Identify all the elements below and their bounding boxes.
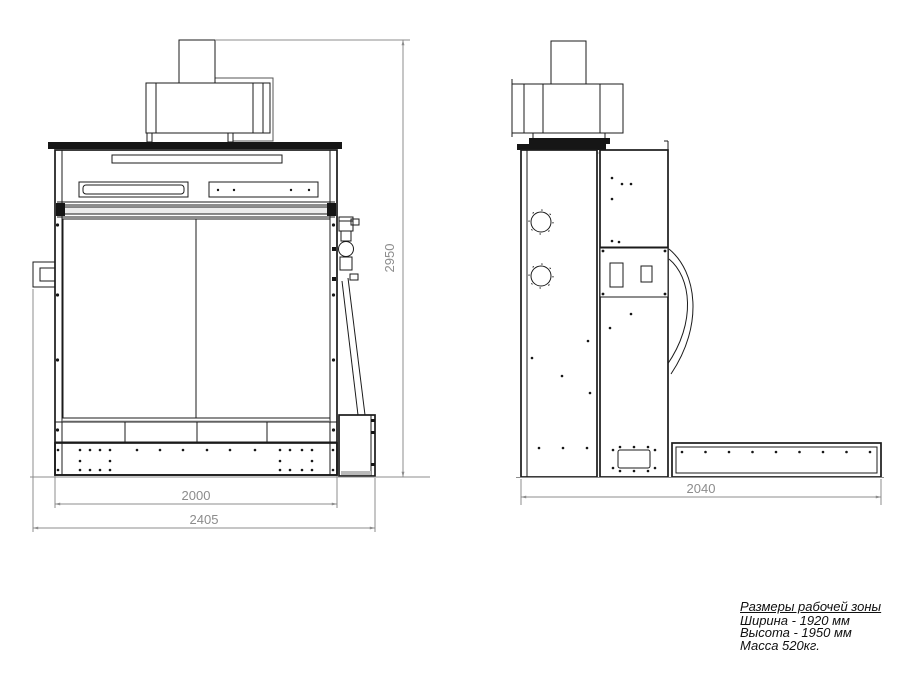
drawing-canvas: 2950 2000 2405 2040 Размеры рабочей зоны… <box>0 0 906 677</box>
front-air-hose <box>342 278 365 415</box>
front-fan-housing <box>146 83 270 142</box>
notes-title: Размеры рабочей зоны <box>740 601 881 614</box>
front-cabinet-cap <box>48 142 342 149</box>
front-view <box>33 40 375 476</box>
side-rear-column <box>600 141 668 477</box>
side-cable-arc <box>667 249 693 374</box>
side-view <box>512 41 881 477</box>
dim-front-inner-width: 2000 <box>55 476 337 508</box>
side-control-box <box>600 248 668 297</box>
dim-front-total-width-label: 2405 <box>190 512 219 527</box>
dim-side-depth-label: 2040 <box>687 481 716 496</box>
front-side-extension-box <box>339 415 375 476</box>
side-base-extension <box>672 443 881 477</box>
technical-drawing-svg: 2950 2000 2405 2040 <box>0 0 906 677</box>
side-fan-housing <box>512 79 623 144</box>
side-cabinet-cap <box>517 144 606 150</box>
dim-front-inner-width-label: 2000 <box>182 488 211 503</box>
front-exhaust-duct <box>179 40 215 84</box>
dim-side-depth: 2040 <box>521 479 881 505</box>
side-exhaust-duct <box>551 41 586 84</box>
work-area-notes: Размеры рабочей зоны Ширина - 1920 мм Вы… <box>740 601 881 652</box>
side-front-column <box>521 150 597 477</box>
front-wall-bracket <box>33 262 55 287</box>
dim-front-height-label: 2950 <box>382 244 397 273</box>
notes-mass-line: Масса 520кг. <box>740 640 881 653</box>
